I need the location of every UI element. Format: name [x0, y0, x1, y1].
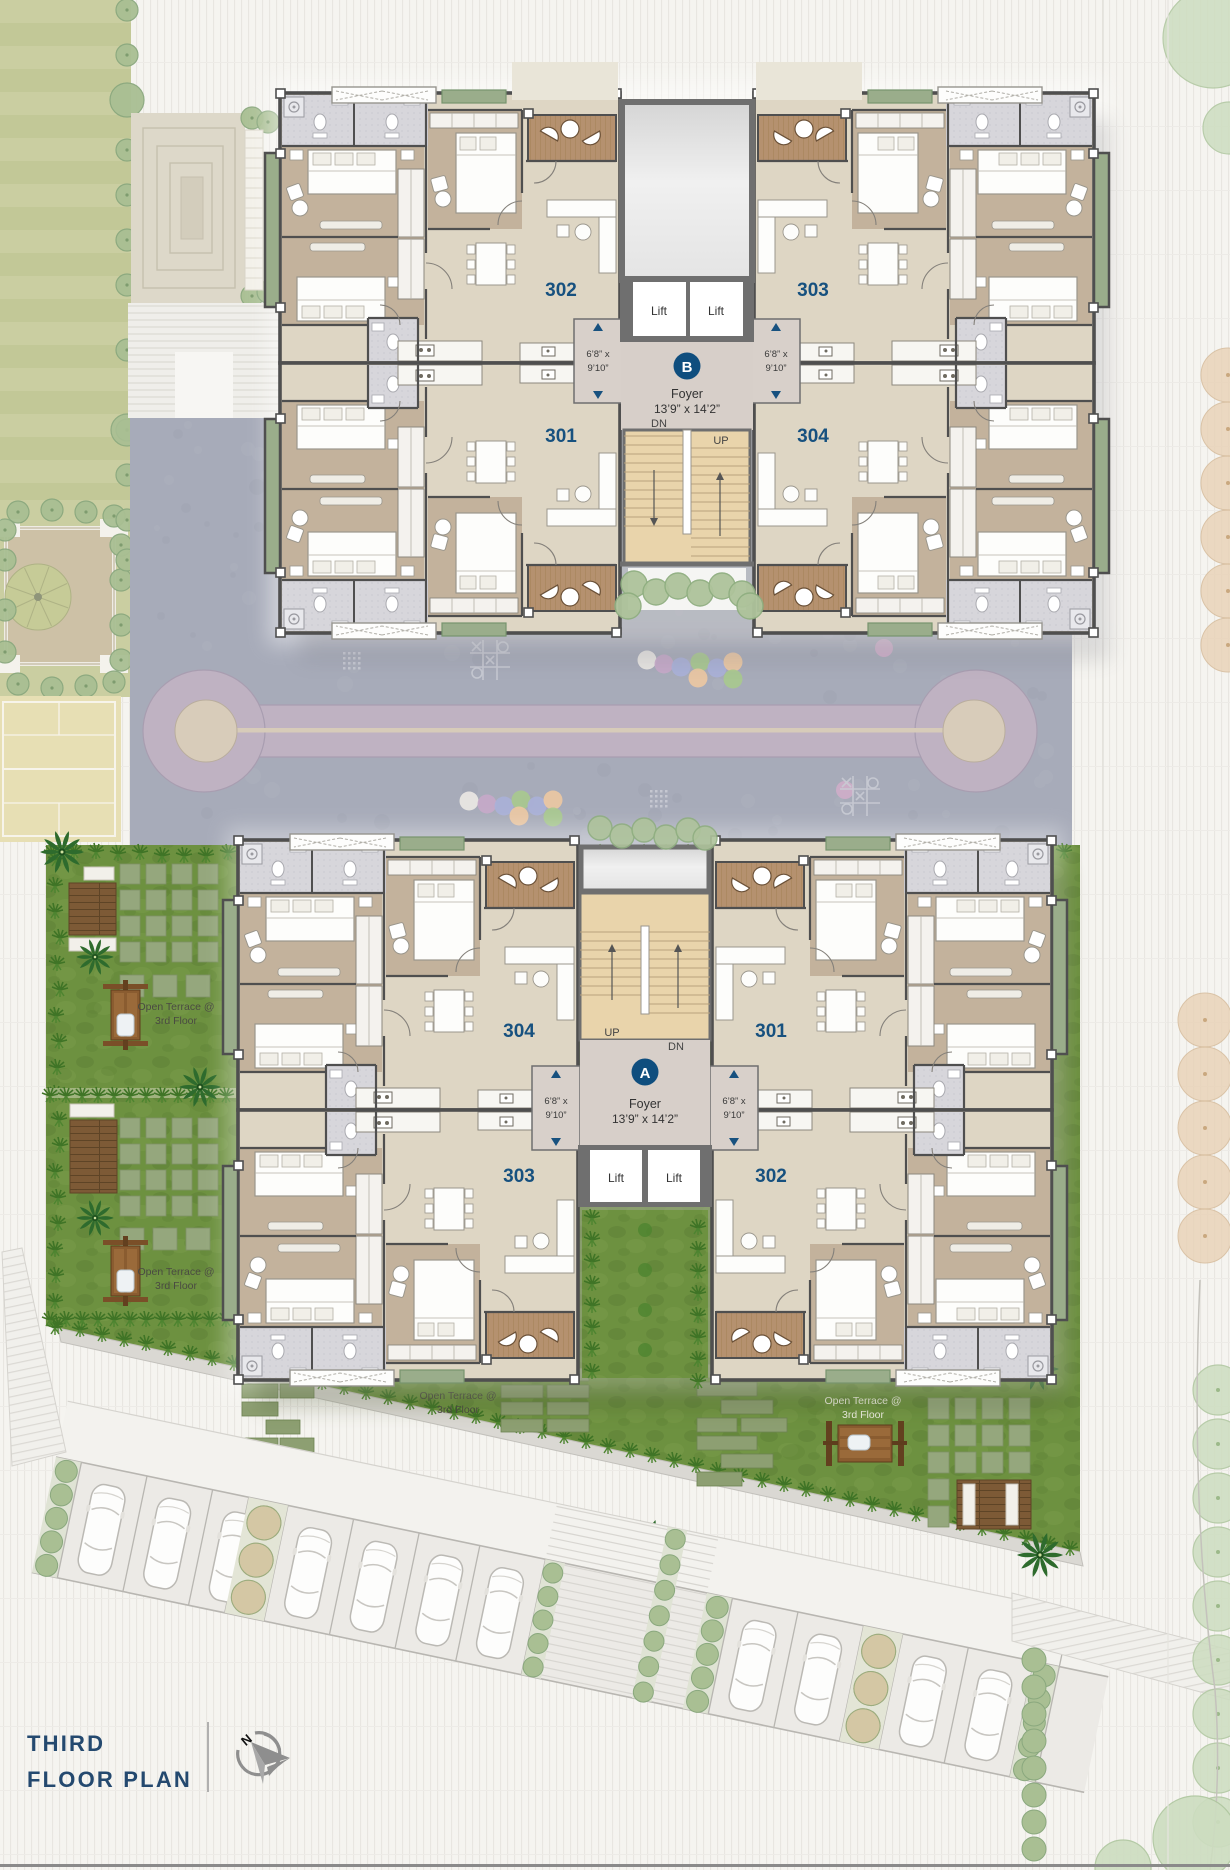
svg-text:13’9” x 14’2”: 13’9” x 14’2” [612, 1112, 678, 1126]
svg-text:THIRD: THIRD [27, 1731, 105, 1756]
svg-text:6’8” x: 6’8” x [722, 1096, 745, 1107]
svg-text:Open Terrace @: Open Terrace @ [137, 1266, 214, 1278]
svg-text:9’10”: 9’10” [765, 363, 786, 374]
svg-text:9’10”: 9’10” [587, 363, 608, 374]
svg-text:3rd Floor: 3rd Floor [155, 1015, 198, 1027]
svg-text:Lift: Lift [708, 304, 725, 318]
svg-text:9’10”: 9’10” [545, 1110, 566, 1121]
svg-text:Lift: Lift [608, 1171, 625, 1185]
svg-text:DN: DN [651, 418, 667, 430]
svg-text:303: 303 [503, 1166, 535, 1187]
svg-text:6’8” x: 6’8” x [586, 349, 609, 360]
svg-text:Lift: Lift [666, 1171, 683, 1185]
svg-text:303: 303 [797, 280, 829, 301]
svg-text:6’8” x: 6’8” x [544, 1096, 567, 1107]
svg-text:DN: DN [668, 1041, 684, 1053]
svg-text:Foyer: Foyer [629, 1097, 661, 1111]
svg-text:Lift: Lift [651, 304, 668, 318]
svg-text:9’10”: 9’10” [723, 1110, 744, 1121]
svg-text:Open Terrace @: Open Terrace @ [137, 1001, 214, 1013]
svg-text:FLOOR PLAN: FLOOR PLAN [27, 1767, 192, 1792]
svg-text:UP: UP [713, 435, 728, 447]
svg-text:3rd Floor: 3rd Floor [842, 1409, 885, 1421]
svg-text:6’8” x: 6’8” x [764, 349, 787, 360]
svg-text:302: 302 [545, 280, 577, 301]
svg-text:304: 304 [503, 1021, 535, 1042]
svg-text:A: A [640, 1065, 651, 1082]
svg-text:B: B [682, 359, 693, 376]
svg-text:302: 302 [755, 1166, 787, 1187]
svg-text:301: 301 [545, 426, 577, 447]
svg-text:304: 304 [797, 426, 829, 447]
svg-text:301: 301 [755, 1021, 787, 1042]
svg-text:3rd Floor: 3rd Floor [155, 1280, 198, 1292]
svg-text:UP: UP [604, 1027, 619, 1039]
svg-text:13’9” x 14’2”: 13’9” x 14’2” [654, 402, 720, 416]
svg-text:Foyer: Foyer [671, 387, 703, 401]
